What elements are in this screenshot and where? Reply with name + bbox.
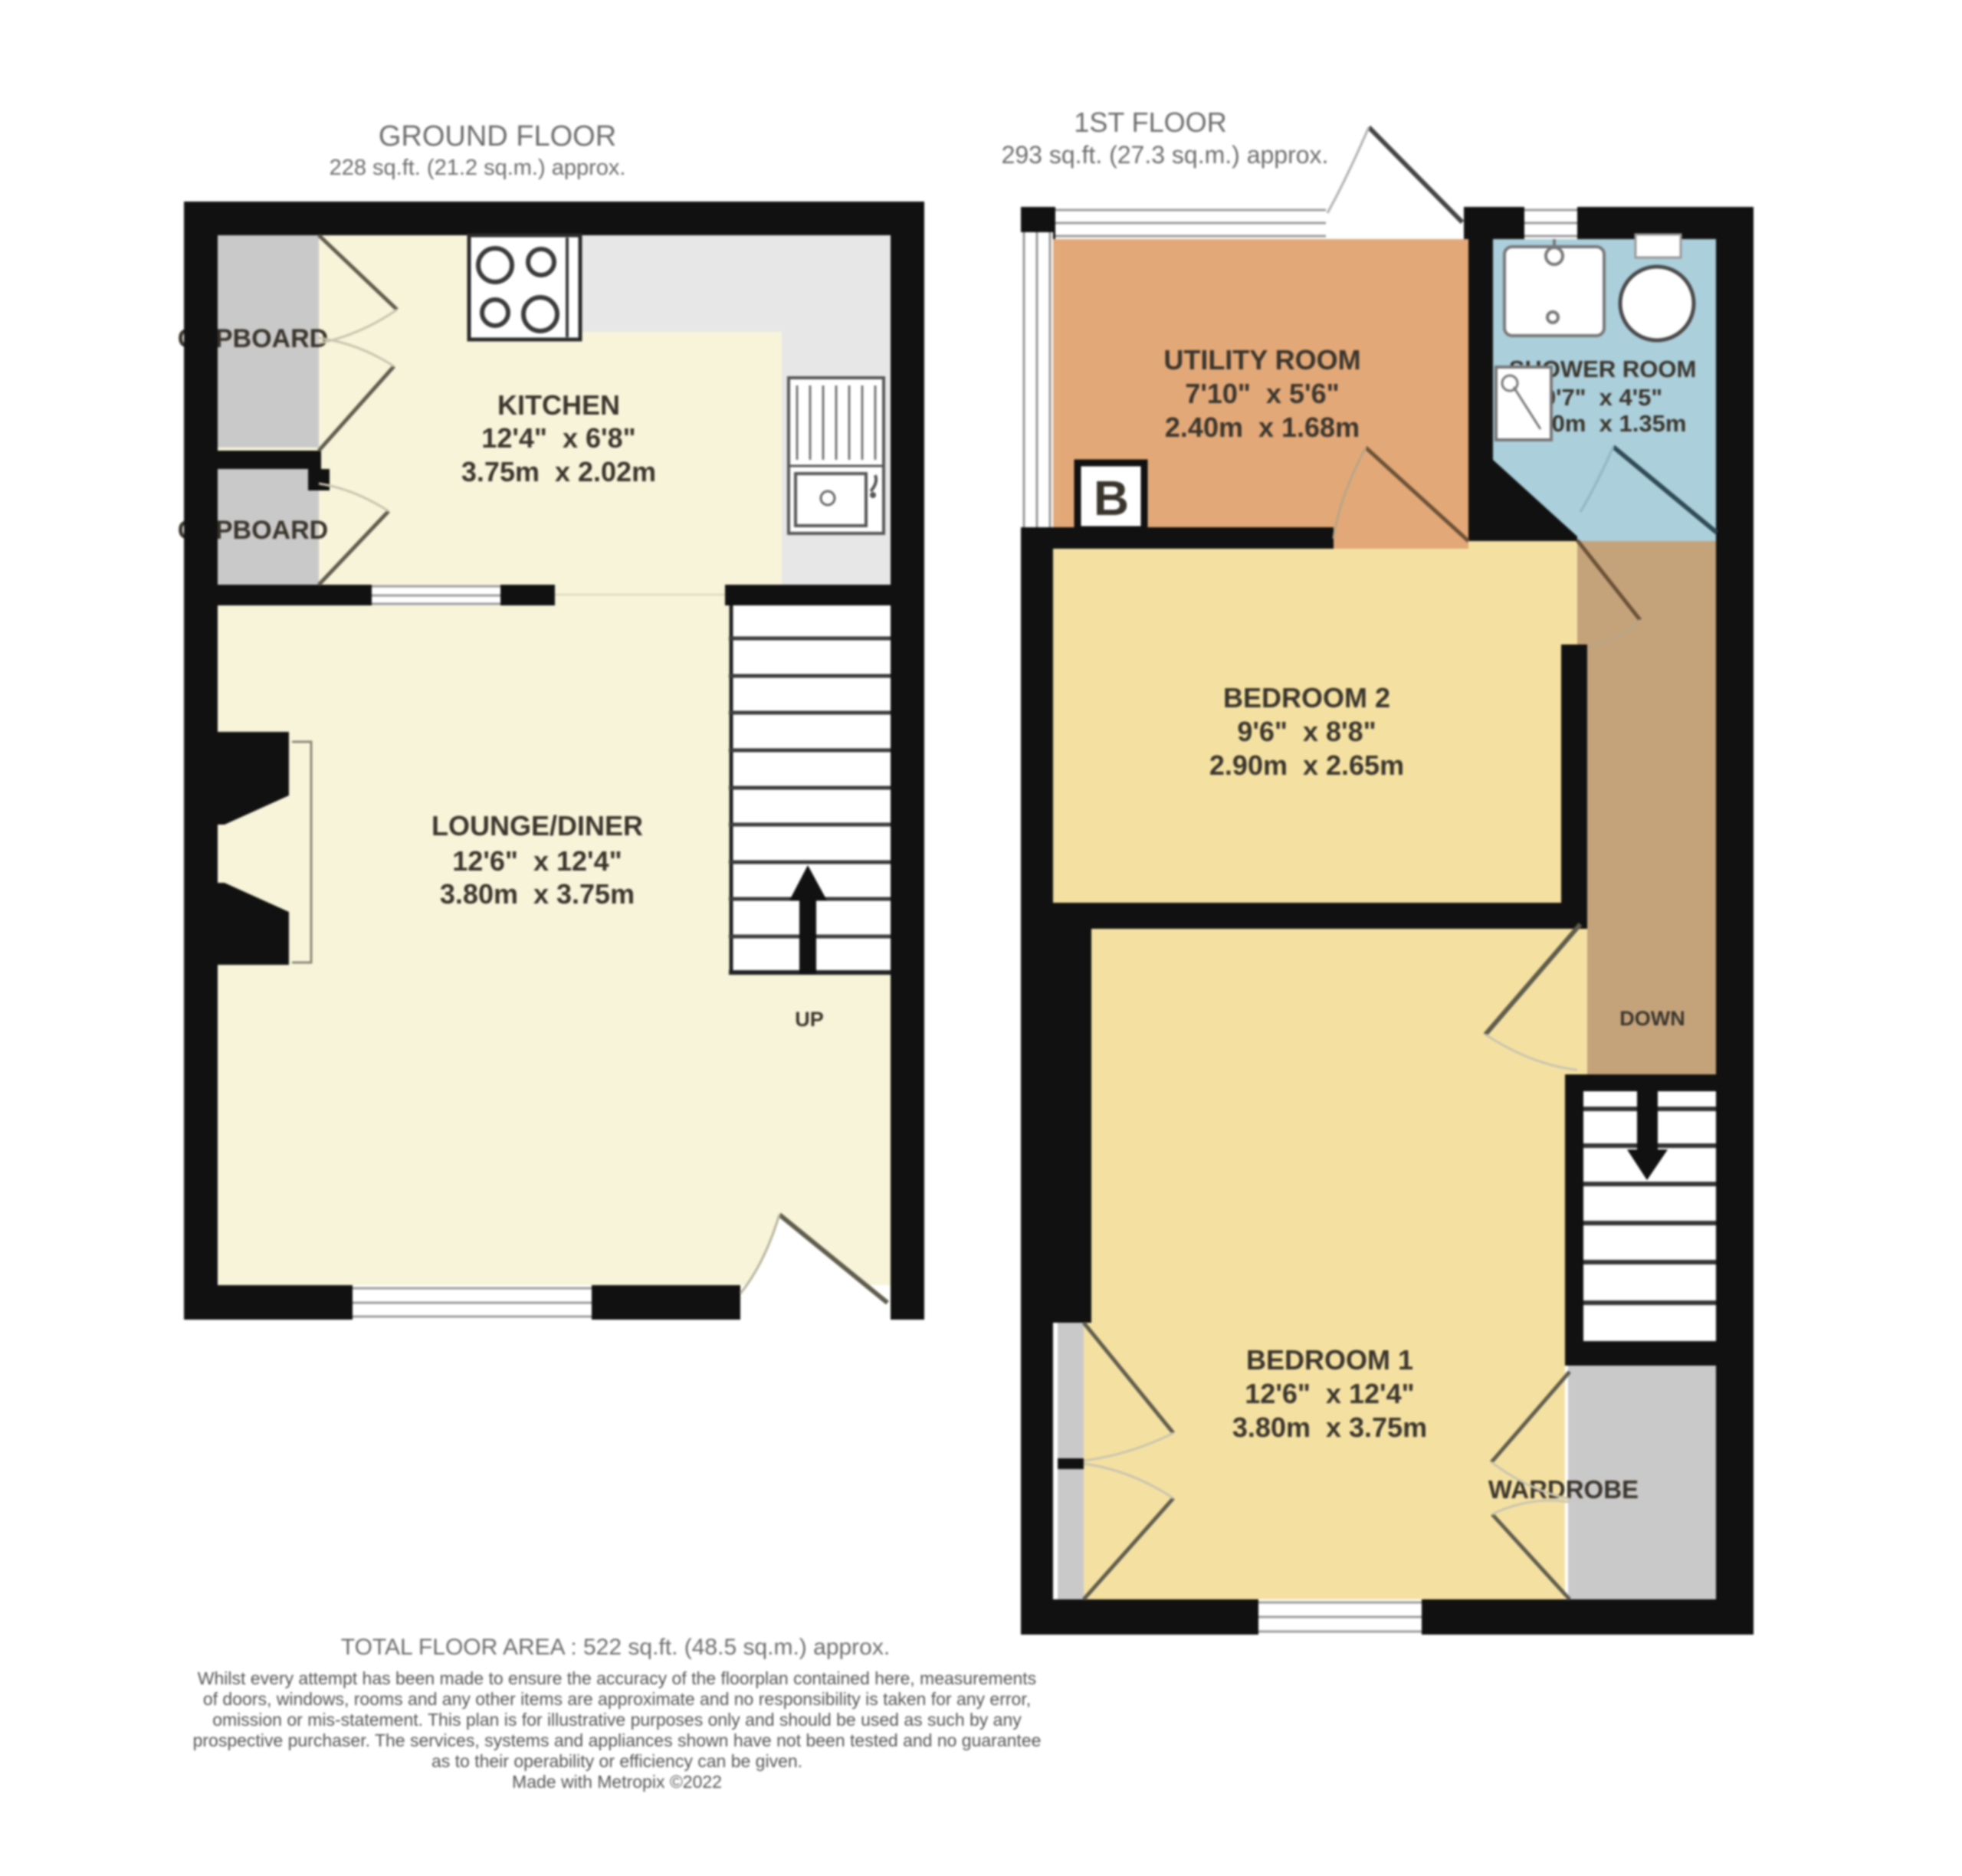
svg-text:1ST FLOOR: 1ST FLOOR [1074, 107, 1226, 138]
svg-text:2.40m x 1.68m: 2.40m x 1.68m [1165, 412, 1360, 443]
svg-text:228 sq.ft. (21.2 sq.m.) approx: 228 sq.ft. (21.2 sq.m.) approx. [330, 156, 626, 180]
svg-text:omission or mis-statement. Thi: omission or mis-statement. This plan is … [212, 1710, 1022, 1730]
svg-text:UTILITY ROOM: UTILITY ROOM [1163, 344, 1360, 376]
svg-text:DOWN: DOWN [1619, 1007, 1685, 1030]
svg-text:WARDROBE: WARDROBE [1488, 1475, 1639, 1504]
svg-text:BEDROOM 1: BEDROOM 1 [1246, 1344, 1413, 1376]
svg-text:TOTAL FLOOR AREA : 522 sq.ft.: TOTAL FLOOR AREA : 522 sq.ft. (48.5 sq.m… [341, 1635, 890, 1660]
svg-text:9'7" x 4'5": 9'7" x 4'5" [1543, 384, 1662, 411]
svg-text:12'6" x 12'4": 12'6" x 12'4" [1245, 1378, 1414, 1409]
svg-text:12'4" x 6'8": 12'4" x 6'8" [481, 422, 635, 454]
svg-text:293 sq.ft. (27.3 sq.m.) approx: 293 sq.ft. (27.3 sq.m.) approx. [1002, 141, 1329, 169]
svg-text:Made with Metropix ©2022: Made with Metropix ©2022 [512, 1772, 722, 1792]
svg-text:KITCHEN: KITCHEN [497, 389, 620, 421]
svg-text:prospective purchaser. The ser: prospective purchaser. The services, sys… [193, 1730, 1042, 1750]
svg-text:7'10" x 5'6": 7'10" x 5'6" [1185, 378, 1339, 409]
svg-text:3.75m x 2.02m: 3.75m x 2.02m [461, 456, 656, 487]
svg-text:3.80m x 3.75m: 3.80m x 3.75m [440, 878, 635, 910]
svg-text:BEDROOM 2: BEDROOM 2 [1223, 682, 1390, 713]
svg-text:GROUND FLOOR: GROUND FLOOR [379, 120, 616, 153]
svg-text:9'6" x 8'8": 9'6" x 8'8" [1237, 716, 1376, 747]
svg-text:Whilst every attempt has been: Whilst every attempt has been made to en… [198, 1668, 1036, 1688]
svg-text:LOUNGE/DINER: LOUNGE/DINER [431, 810, 643, 841]
svg-text:3.80m x 3.75m: 3.80m x 3.75m [1232, 1412, 1427, 1443]
svg-text:12'6" x 12'4": 12'6" x 12'4" [452, 845, 622, 877]
svg-text:of doors, windows, rooms and a: of doors, windows, rooms and any other i… [203, 1689, 1031, 1709]
svg-text:B: B [1094, 471, 1129, 526]
svg-text:as to their operability or eff: as to their operability or efficiency ca… [431, 1751, 802, 1771]
svg-text:2.90m x 2.65m: 2.90m x 2.65m [1209, 749, 1404, 781]
svg-text:UP: UP [795, 1008, 824, 1031]
